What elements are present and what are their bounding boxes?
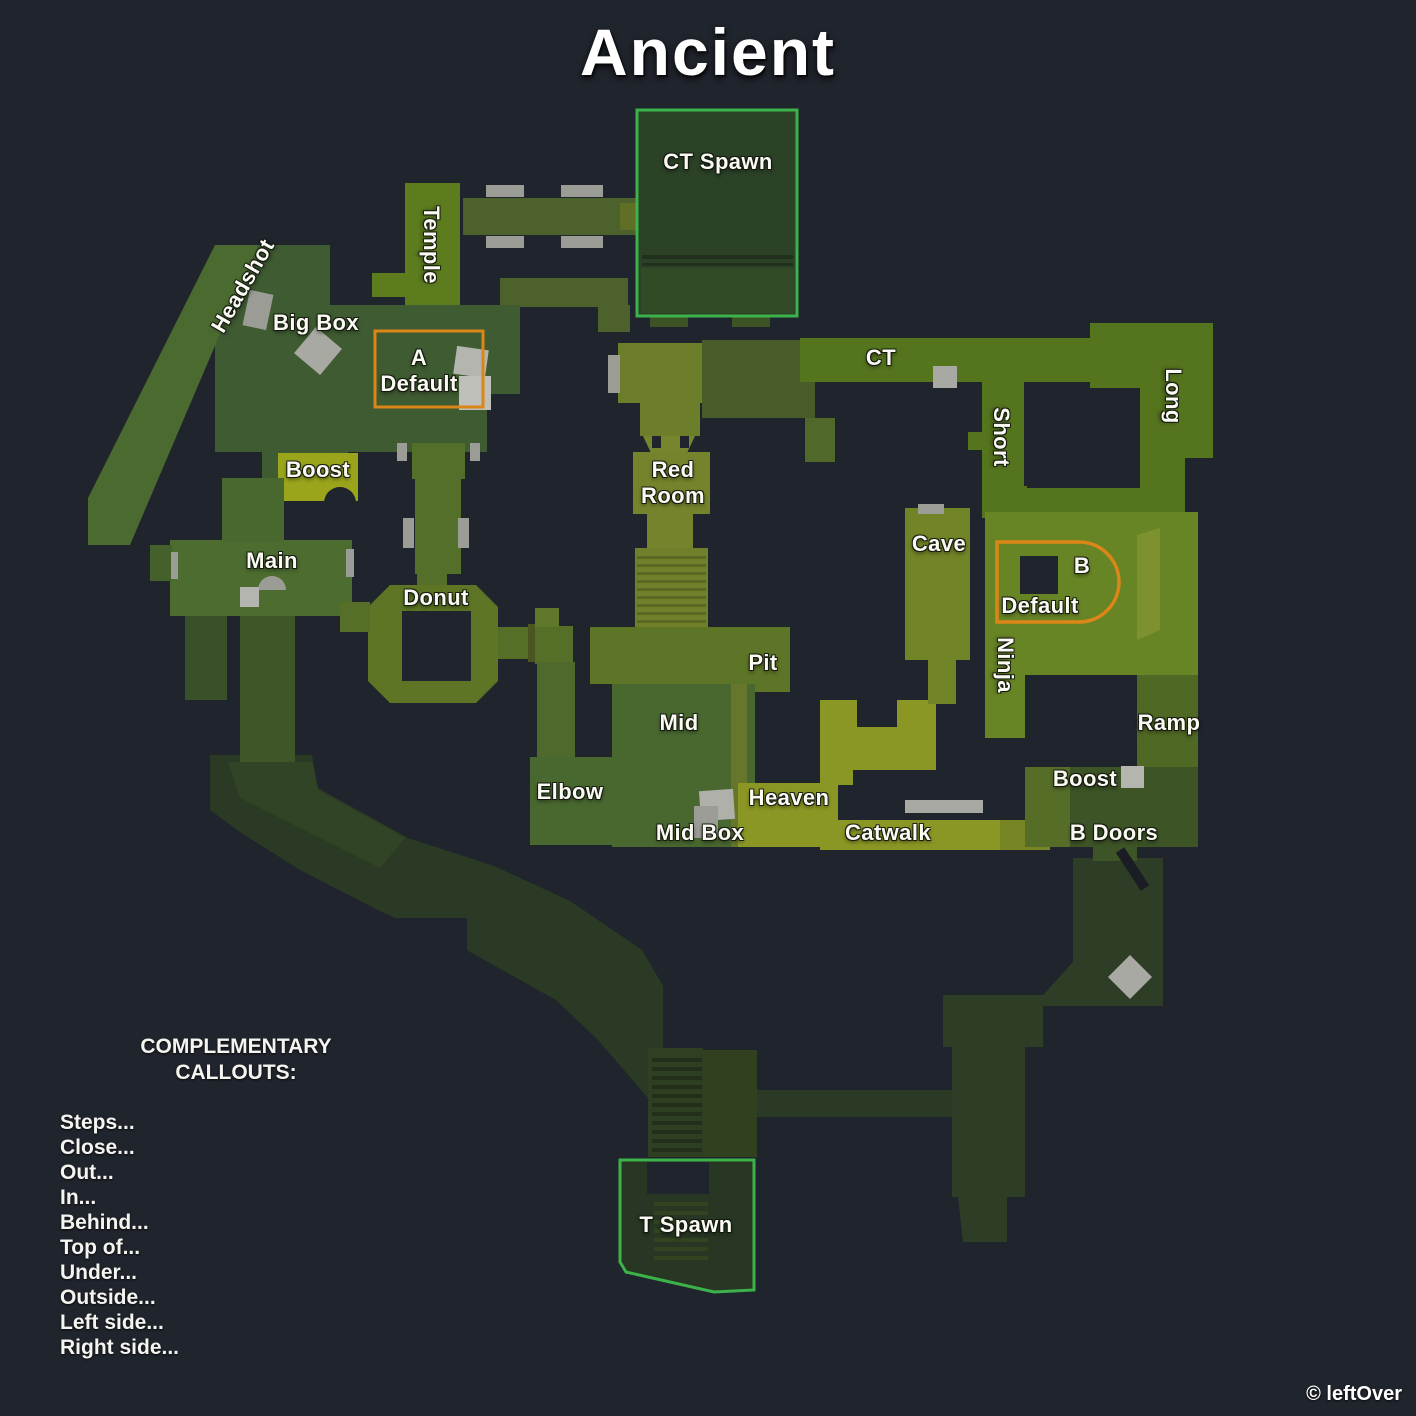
callout-red-room: Red Room [641,457,705,509]
complementary-item: Top of... [60,1235,179,1260]
callout-pit: Pit [748,650,777,676]
callout-short: Short [988,407,1014,466]
complementary-heading: COMPLEMENTARY CALLOUTS: [56,1034,416,1086]
mid-area [530,340,835,847]
callout-heaven: Heaven [749,785,830,811]
callout-ct: CT [866,345,896,371]
callout-main: Main [246,548,298,574]
complementary-item: Under... [60,1260,179,1285]
callout-catwalk: Catwalk [845,820,931,846]
callout-elbow: Elbow [537,779,604,805]
ancient-map-page: Ancient CT SpawnTempleHeadshotBig BoxA D… [0,0,1416,1416]
callout-temple: Temple [418,206,444,284]
callout-t-spawn: T Spawn [639,1212,732,1238]
map-render [0,0,1416,1416]
callout-boost-a: Boost [286,457,350,483]
complementary-item: In... [60,1185,179,1210]
complementary-item: Out... [60,1160,179,1185]
ct-spawn-area [620,110,797,327]
complementary-item: Steps... [60,1110,179,1135]
callout-cave: Cave [912,531,966,557]
callout-b: B [1074,553,1090,579]
complementary-item: Left side... [60,1310,179,1335]
credit-text: © leftOver [1306,1383,1402,1406]
complementary-callouts-list: Steps...Close...Out...In...Behind...Top … [60,1110,179,1360]
complementary-item: Right side... [60,1335,179,1360]
callout-b-doors: B Doors [1070,820,1158,846]
callout-boost-b: Boost [1053,766,1117,792]
callout-long: Long [1160,368,1186,423]
callout-big-box: Big Box [273,310,359,336]
complementary-item: Close... [60,1135,179,1160]
callout-donut: Donut [403,585,469,611]
callout-mid-box: Mid Box [656,820,744,846]
complementary-item: Outside... [60,1285,179,1310]
callout-b-default: Default [1001,593,1078,619]
callout-ninja: Ninja [992,637,1018,693]
page-title: Ancient [0,14,1416,90]
callout-ct-spawn: CT Spawn [663,149,773,175]
callout-a-default: A Default [380,345,457,397]
callout-mid: Mid [659,710,698,736]
complementary-item: Behind... [60,1210,179,1235]
callout-ramp: Ramp [1138,710,1201,736]
